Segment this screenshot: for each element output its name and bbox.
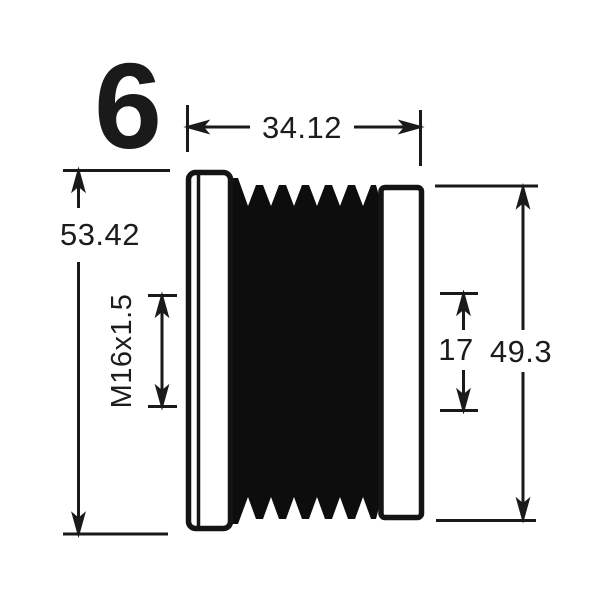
technical-drawing-canvas: 6 34.12 53.42 M16x1.5 17 49.3 (0, 0, 600, 600)
arrowhead-right-icon (402, 122, 419, 131)
arrowhead-up-icon (157, 297, 166, 314)
arrowhead-up-icon (74, 172, 83, 189)
thread-spec-label: M16x1.5 (102, 281, 142, 421)
arrowhead-up-icon (459, 295, 468, 312)
arrowhead-down-icon (74, 516, 83, 533)
left-flange-outline (189, 173, 231, 529)
arrowhead-up-icon (518, 189, 527, 206)
arrowhead-left-icon (189, 122, 206, 131)
groove-count-label: 6 (74, 56, 182, 156)
arrowhead-down-icon (459, 392, 468, 409)
overall-height-label: 53.42 (30, 214, 170, 254)
right-height-label: 49.3 (461, 331, 581, 371)
left-flange (189, 173, 231, 529)
dimension-thread (148, 296, 177, 407)
arrowhead-down-icon (518, 501, 527, 518)
pulley-ribbed-body (228, 178, 381, 524)
arrowhead-down-icon (157, 388, 166, 405)
overall-width-label: 34.12 (232, 107, 372, 147)
